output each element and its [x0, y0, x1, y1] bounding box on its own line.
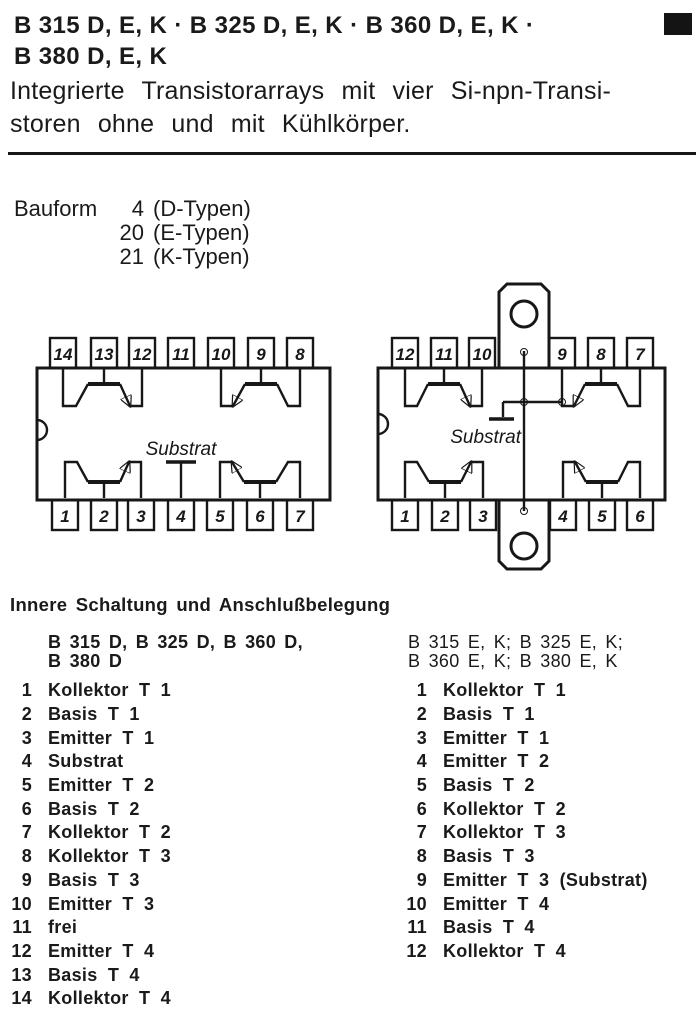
dip12-package-outline	[378, 368, 665, 500]
pin-box: 13	[91, 338, 117, 368]
pin-row: 11frei	[0, 916, 352, 940]
emitter-arrow-icon	[460, 384, 470, 406]
transistor-t3-symbol	[221, 368, 300, 406]
svg-text:12: 12	[396, 345, 415, 364]
pin-box: 4	[550, 500, 576, 530]
pin-row: 13Basis T 4	[0, 963, 352, 987]
svg-text:8: 8	[295, 345, 305, 364]
svg-text:9: 9	[557, 345, 567, 364]
pin-row: 11Basis T 4	[360, 916, 700, 940]
pin-row: 12Kollektor T 4	[360, 940, 700, 964]
pin-row: 6Basis T 2	[0, 797, 352, 821]
transistor-t1-symbol	[405, 462, 483, 498]
svg-text:8: 8	[596, 345, 606, 364]
section-heading: Innere Schaltung und Anschlußbelegung	[10, 594, 390, 616]
pin-box: 10	[469, 338, 495, 368]
transistor-t1-symbol	[65, 462, 141, 498]
pin-row: 5Basis T 2	[360, 774, 700, 798]
pin-row: 8Kollektor T 3	[0, 845, 352, 869]
bauform-row: 20(E-Typen)	[112, 221, 251, 245]
svg-text:6: 6	[255, 507, 265, 526]
pin-box: 12	[129, 338, 155, 368]
transistor-t3-symbol	[562, 368, 640, 406]
title-line-2: B 380 D, E, K	[14, 41, 534, 72]
subtitle-line-1: Integrierte Transistorarrays mit vier Si…	[10, 75, 611, 108]
dip14-package-outline	[37, 368, 330, 500]
pin-list: 1Kollektor T 1 2Basis T 1 3Emitter T 1 4…	[0, 679, 352, 1011]
page-subtitle: Integrierte Transistorarrays mit vier Si…	[10, 75, 611, 141]
svg-text:7: 7	[295, 507, 306, 526]
pin-box: 14	[50, 338, 76, 368]
pin-box: 5	[207, 500, 233, 530]
datasheet-page: B 315 D, E, K · B 325 D, E, K · B 360 D,…	[0, 0, 700, 1030]
pin-row: 4Emitter T 2	[360, 750, 700, 774]
pin-box: 11	[431, 338, 457, 368]
pin-row: 1Kollektor T 1	[0, 679, 352, 703]
pin-box: 3	[470, 500, 496, 530]
pin-box: 9	[248, 338, 274, 368]
column-header: B 315 D, B 325 D, B 360 D, B 380 D	[48, 633, 352, 671]
svg-text:12: 12	[133, 345, 152, 364]
title-line-1: B 315 D, E, K · B 325 D, E, K · B 360 D,…	[14, 10, 534, 41]
emitter-arrow-icon	[233, 384, 245, 406]
pin-row: 14Kollektor T 4	[0, 987, 352, 1011]
pin-row: 3Emitter T 1	[0, 726, 352, 750]
bauform-rows: 4(D-Typen) 20(E-Typen) 21(K-Typen)	[112, 197, 251, 269]
svg-text:11: 11	[172, 345, 190, 364]
pin-box: 8	[588, 338, 614, 368]
column-header: B 315 E, K; B 325 E, K; B 360 E, K; B 38…	[408, 633, 700, 671]
emitter-arrow-icon	[461, 462, 471, 482]
pin-row: 2Basis T 1	[0, 703, 352, 727]
emitter-arrow-icon	[120, 384, 130, 406]
subtitle-line-2: storen ohne und mit Kühlkörper.	[10, 108, 611, 141]
pin-row: 9Basis T 3	[0, 869, 352, 893]
pin-box: 11	[168, 338, 194, 368]
pin-row: 10Emitter T 4	[360, 892, 700, 916]
svg-text:3: 3	[136, 507, 146, 526]
emitter-arrow-icon	[120, 462, 129, 482]
substrate-symbol	[166, 462, 196, 498]
pin-row: 7Kollektor T 2	[0, 821, 352, 845]
svg-text:4: 4	[175, 507, 186, 526]
pin-box: 1	[52, 500, 78, 530]
pin-box: 2	[432, 500, 458, 530]
substrate-label: Substrat	[146, 439, 217, 460]
substrate-label: Substrat	[450, 427, 521, 448]
svg-text:5: 5	[215, 507, 225, 526]
mounting-hole-icon	[511, 533, 537, 559]
pin-box: 8	[287, 338, 313, 368]
pin-row: 9Emitter T 3 (Substrat)	[360, 869, 700, 893]
index-marker-icon	[664, 13, 692, 35]
mounting-hole-icon	[511, 301, 537, 327]
bauform-block: Bauform 4(D-Typen) 20(E-Typen) 21(K-Type…	[14, 197, 251, 269]
pin-row: 3Emitter T 1	[360, 726, 700, 750]
pin-list: 1Kollektor T 1 2Basis T 1 3Emitter T 1 4…	[360, 679, 700, 963]
transistor-t2-symbol	[563, 462, 640, 498]
svg-text:2: 2	[98, 507, 109, 526]
svg-text:14: 14	[54, 345, 73, 364]
svg-text:5: 5	[597, 507, 607, 526]
pin-row: 4Substrat	[0, 750, 352, 774]
emitter-arrow-icon	[575, 462, 586, 482]
pin-box: 6	[627, 500, 653, 530]
svg-text:13: 13	[95, 345, 114, 364]
svg-text:10: 10	[473, 345, 492, 364]
svg-text:2: 2	[439, 507, 450, 526]
svg-text:4: 4	[557, 507, 568, 526]
transistor-t2-symbol	[220, 462, 300, 498]
page-title: B 315 D, E, K · B 325 D, E, K · B 360 D,…	[14, 10, 534, 72]
pin-box: 7	[287, 500, 313, 530]
pin-box: 10	[208, 338, 234, 368]
svg-text:10: 10	[212, 345, 231, 364]
pin-assignment-ek-types: B 315 E, K; B 325 E, K; B 360 E, K; B 38…	[360, 633, 700, 963]
pin-row: 7Kollektor T 3	[360, 821, 700, 845]
pinout-diagrams: 14 13 12 11 10 9 8 1 2 3 4 5 6 7 12 11 1…	[0, 270, 700, 590]
bauform-row: 21(K-Typen)	[112, 245, 251, 269]
svg-text:6: 6	[635, 507, 645, 526]
transistor-t4-symbol	[63, 368, 142, 406]
svg-text:3: 3	[478, 507, 488, 526]
pin-box: 5	[589, 500, 615, 530]
emitter-arrow-icon	[232, 462, 244, 482]
pin-box: 12	[392, 338, 418, 368]
pin-box: 3	[128, 500, 154, 530]
pin-box: 4	[168, 500, 194, 530]
divider-rule	[8, 152, 696, 155]
pin-row: 8Basis T 3	[360, 845, 700, 869]
pin-row: 2Basis T 1	[360, 703, 700, 727]
pin-box: 2	[91, 500, 117, 530]
bauform-row: 4(D-Typen)	[112, 197, 251, 221]
pin-row: 1Kollektor T 1	[360, 679, 700, 703]
pin-box: 1	[392, 500, 418, 530]
pin-box: 9	[549, 338, 575, 368]
svg-text:1: 1	[60, 507, 69, 526]
bauform-label: Bauform	[14, 197, 112, 269]
emitter-arrow-icon	[574, 384, 585, 406]
svg-text:11: 11	[435, 345, 453, 364]
pin-box: 7	[627, 338, 653, 368]
svg-text:9: 9	[256, 345, 266, 364]
pin-row: 6Kollektor T 2	[360, 797, 700, 821]
pin-row: 10Emitter T 3	[0, 892, 352, 916]
svg-text:7: 7	[635, 345, 646, 364]
pin-assignment-d-types: B 315 D, B 325 D, B 360 D, B 380 D 1Koll…	[0, 633, 352, 1011]
pin-row: 12Emitter T 4	[0, 940, 352, 964]
svg-text:1: 1	[400, 507, 409, 526]
pin-box: 6	[247, 500, 273, 530]
pin-row: 5Emitter T 2	[0, 774, 352, 798]
transistor-t4-symbol	[405, 368, 482, 406]
